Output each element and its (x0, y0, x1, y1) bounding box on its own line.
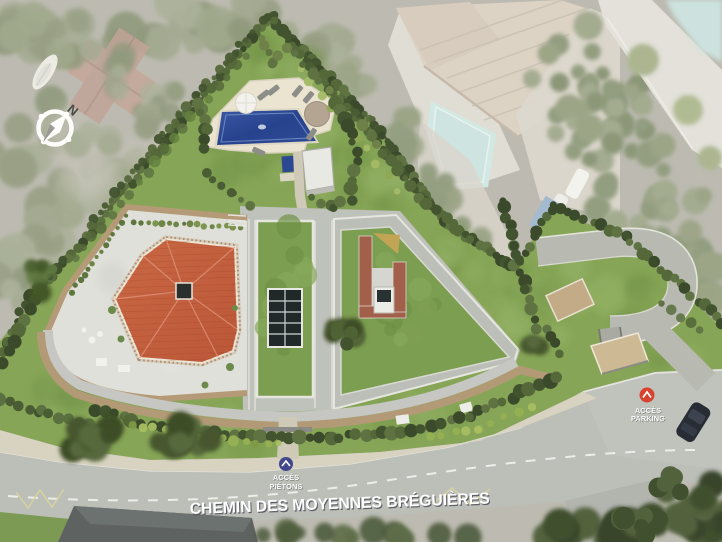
svg-text:PIÉTONS: PIÉTONS (270, 482, 303, 491)
svg-text:ACCÈS: ACCÈS (273, 473, 299, 482)
svg-text:PARKING: PARKING (631, 414, 665, 423)
